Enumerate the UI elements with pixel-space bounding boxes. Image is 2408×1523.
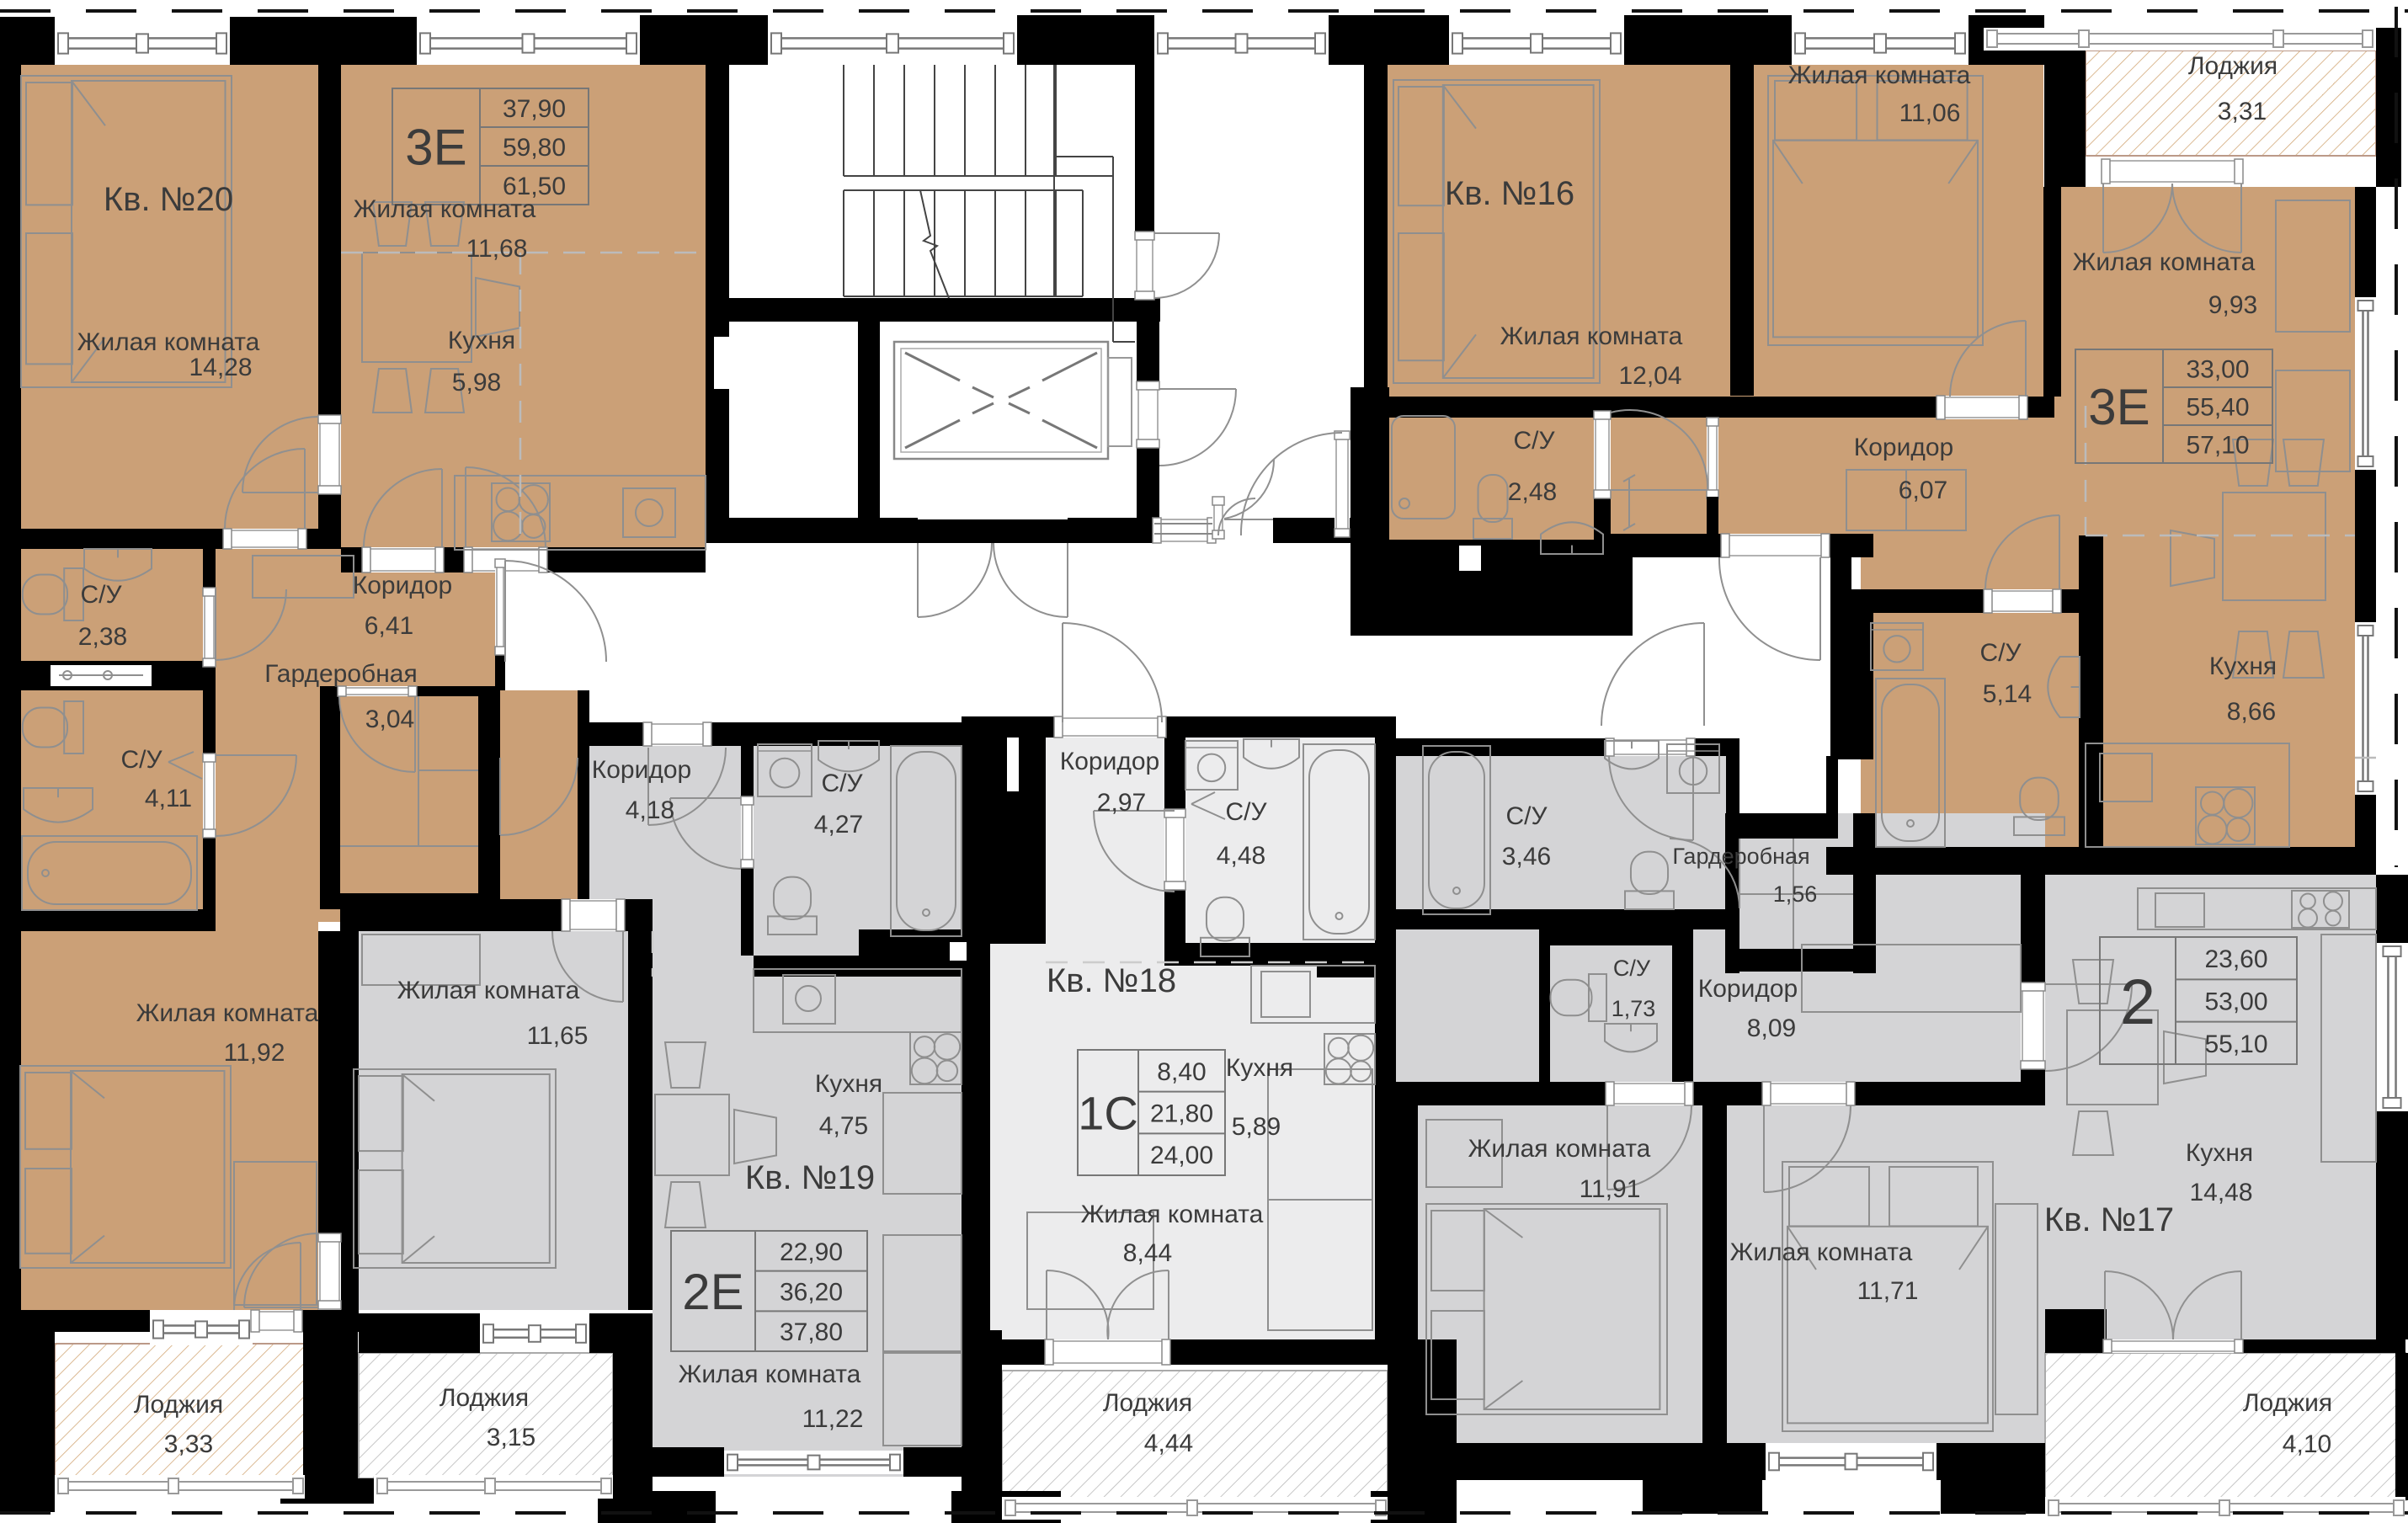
svg-text:53,00: 53,00 [2204,988,2267,1016]
svg-text:1С: 1С [1078,1087,1138,1140]
svg-text:2,38: 2,38 [78,623,127,651]
svg-text:Кв. №18: Кв. №18 [1047,962,1176,999]
svg-text:С/У: С/У [1513,427,1555,455]
svg-text:Лоджия: Лоджия [440,1384,529,1412]
svg-text:Коридор: Коридор [1060,748,1159,775]
svg-text:Жилая комната: Жилая комната [2073,248,2256,276]
svg-text:Кухня: Кухня [815,1070,882,1098]
svg-text:14,28: 14,28 [189,354,252,381]
svg-text:6,07: 6,07 [1899,477,1947,504]
svg-text:Лоджия: Лоджия [2188,52,2277,80]
svg-text:Жилая комната: Жилая комната [77,328,260,356]
svg-text:3,04: 3,04 [365,706,414,733]
svg-text:37,90: 37,90 [503,95,566,123]
svg-text:2Е: 2Е [682,1264,743,1320]
svg-text:Кухня: Кухня [2209,652,2277,680]
svg-text:11,65: 11,65 [527,1022,589,1050]
svg-text:2: 2 [2120,967,2155,1038]
svg-text:1,56: 1,56 [1773,881,1818,907]
svg-text:4,11: 4,11 [145,785,192,812]
svg-text:21,80: 21,80 [1150,1100,1213,1128]
svg-text:Кухня: Кухня [2186,1139,2253,1167]
svg-text:1,73: 1,73 [1612,996,1656,1021]
svg-text:Коридор: Коридор [1698,975,1798,1003]
svg-text:8,40: 8,40 [1157,1058,1206,1086]
svg-text:Коридор: Коридор [592,756,691,784]
svg-text:37,80: 37,80 [780,1318,843,1346]
svg-text:4,75: 4,75 [819,1112,868,1140]
svg-text:Жилая комната: Жилая комната [1468,1135,1651,1163]
svg-text:8,44: 8,44 [1123,1239,1172,1267]
svg-text:14,48: 14,48 [2189,1179,2252,1206]
svg-text:5,89: 5,89 [1232,1113,1281,1141]
svg-text:11,68: 11,68 [466,235,528,263]
svg-text:3,15: 3,15 [487,1424,535,1451]
svg-text:Гардеробная: Гардеробная [1672,844,1809,869]
svg-text:11,71: 11,71 [1857,1277,1919,1305]
svg-text:57,10: 57,10 [2186,432,2249,460]
svg-text:Жилая комната: Жилая комната [1500,322,1683,350]
svg-text:59,80: 59,80 [503,134,566,162]
svg-text:11,22: 11,22 [802,1405,864,1433]
svg-text:Жилая комната: Жилая комната [136,999,319,1027]
svg-text:8,09: 8,09 [1747,1014,1796,1042]
svg-text:С/У: С/У [80,581,122,609]
svg-text:Жилая комната: Жилая комната [354,195,536,223]
svg-text:6,41: 6,41 [365,612,413,640]
svg-text:11,92: 11,92 [224,1039,285,1067]
svg-text:22,90: 22,90 [780,1238,843,1266]
svg-text:3Е: 3Е [2088,379,2150,435]
svg-text:9,93: 9,93 [2208,291,2257,319]
svg-text:5,14: 5,14 [1983,680,2032,708]
svg-text:4,18: 4,18 [626,796,674,824]
svg-text:Кв. №20: Кв. №20 [104,181,233,218]
svg-text:Коридор: Коридор [353,572,452,599]
svg-text:Жилая комната: Жилая комната [1788,61,1971,89]
svg-text:Кв. №16: Кв. №16 [1445,175,1574,212]
svg-text:11,06: 11,06 [1899,99,1961,127]
svg-text:3Е: 3Е [405,120,466,176]
svg-text:3,33: 3,33 [164,1430,213,1458]
svg-text:Лоджия: Лоджия [134,1391,223,1419]
svg-text:4,27: 4,27 [814,811,863,839]
svg-text:4,48: 4,48 [1217,842,1265,870]
svg-text:12,04: 12,04 [1618,362,1681,390]
svg-text:Лоджия: Лоджия [2243,1389,2332,1417]
svg-text:55,10: 55,10 [2204,1030,2267,1058]
svg-text:С/У: С/У [120,746,162,774]
svg-text:4,10: 4,10 [2283,1430,2331,1458]
svg-text:11,91: 11,91 [1580,1175,1641,1203]
svg-text:С/У: С/У [1613,956,1651,981]
svg-text:24,00: 24,00 [1150,1142,1213,1169]
svg-text:Коридор: Коридор [1854,434,1953,461]
svg-text:3,31: 3,31 [2218,98,2267,125]
svg-text:С/У: С/У [1979,639,2022,667]
svg-text:2,97: 2,97 [1097,789,1146,817]
svg-text:Кв. №17: Кв. №17 [2044,1201,2174,1238]
svg-text:33,00: 33,00 [2186,356,2249,384]
svg-text:Кухня: Кухня [448,327,515,354]
svg-text:36,20: 36,20 [780,1279,843,1307]
svg-text:3,46: 3,46 [1502,843,1551,871]
svg-text:С/У: С/У [1225,798,1267,826]
svg-text:5,98: 5,98 [452,369,501,397]
svg-text:8,66: 8,66 [2227,698,2276,726]
svg-text:Кухня: Кухня [1226,1054,1293,1082]
svg-text:Жилая комната: Жилая комната [1730,1238,1913,1266]
svg-text:23,60: 23,60 [2204,945,2267,973]
svg-text:Жилая комната: Жилая комната [1081,1201,1264,1228]
svg-text:Жилая комната: Жилая комната [397,977,580,1004]
svg-text:Кв. №19: Кв. №19 [745,1159,875,1196]
svg-text:Жилая комната: Жилая комната [679,1361,861,1388]
svg-text:2,48: 2,48 [1508,478,1557,506]
svg-text:С/У: С/У [821,769,863,797]
svg-text:Гардеробная: Гардеробная [264,660,417,688]
svg-text:С/У: С/У [1505,802,1548,830]
svg-text:55,40: 55,40 [2186,394,2249,422]
svg-text:4,44: 4,44 [1144,1430,1193,1457]
svg-text:Лоджия: Лоджия [1103,1389,1192,1417]
